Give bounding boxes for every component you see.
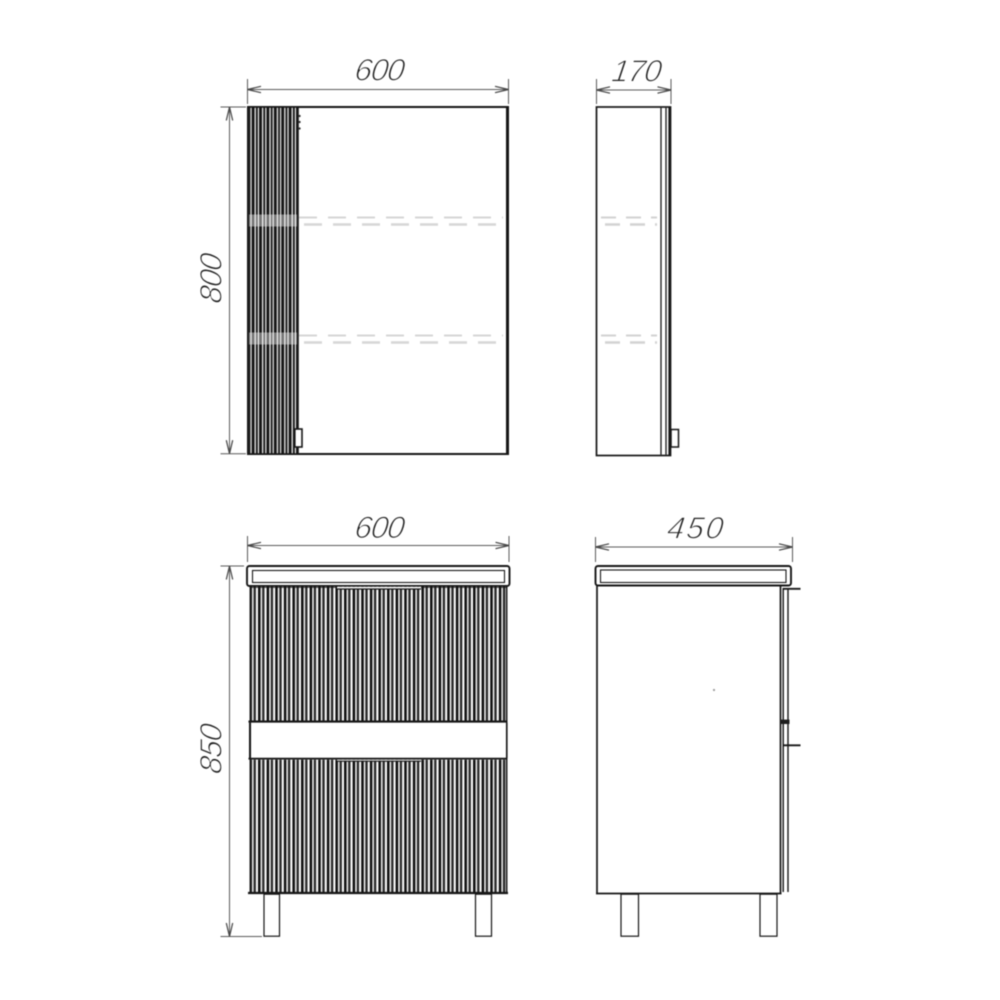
svg-text:600: 600 [353,53,408,88]
svg-text:600: 600 [353,510,408,545]
svg-text:170: 170 [610,54,665,89]
svg-text:850: 850 [194,721,229,776]
svg-text:800: 800 [194,250,229,305]
svg-text:450: 450 [665,511,728,546]
